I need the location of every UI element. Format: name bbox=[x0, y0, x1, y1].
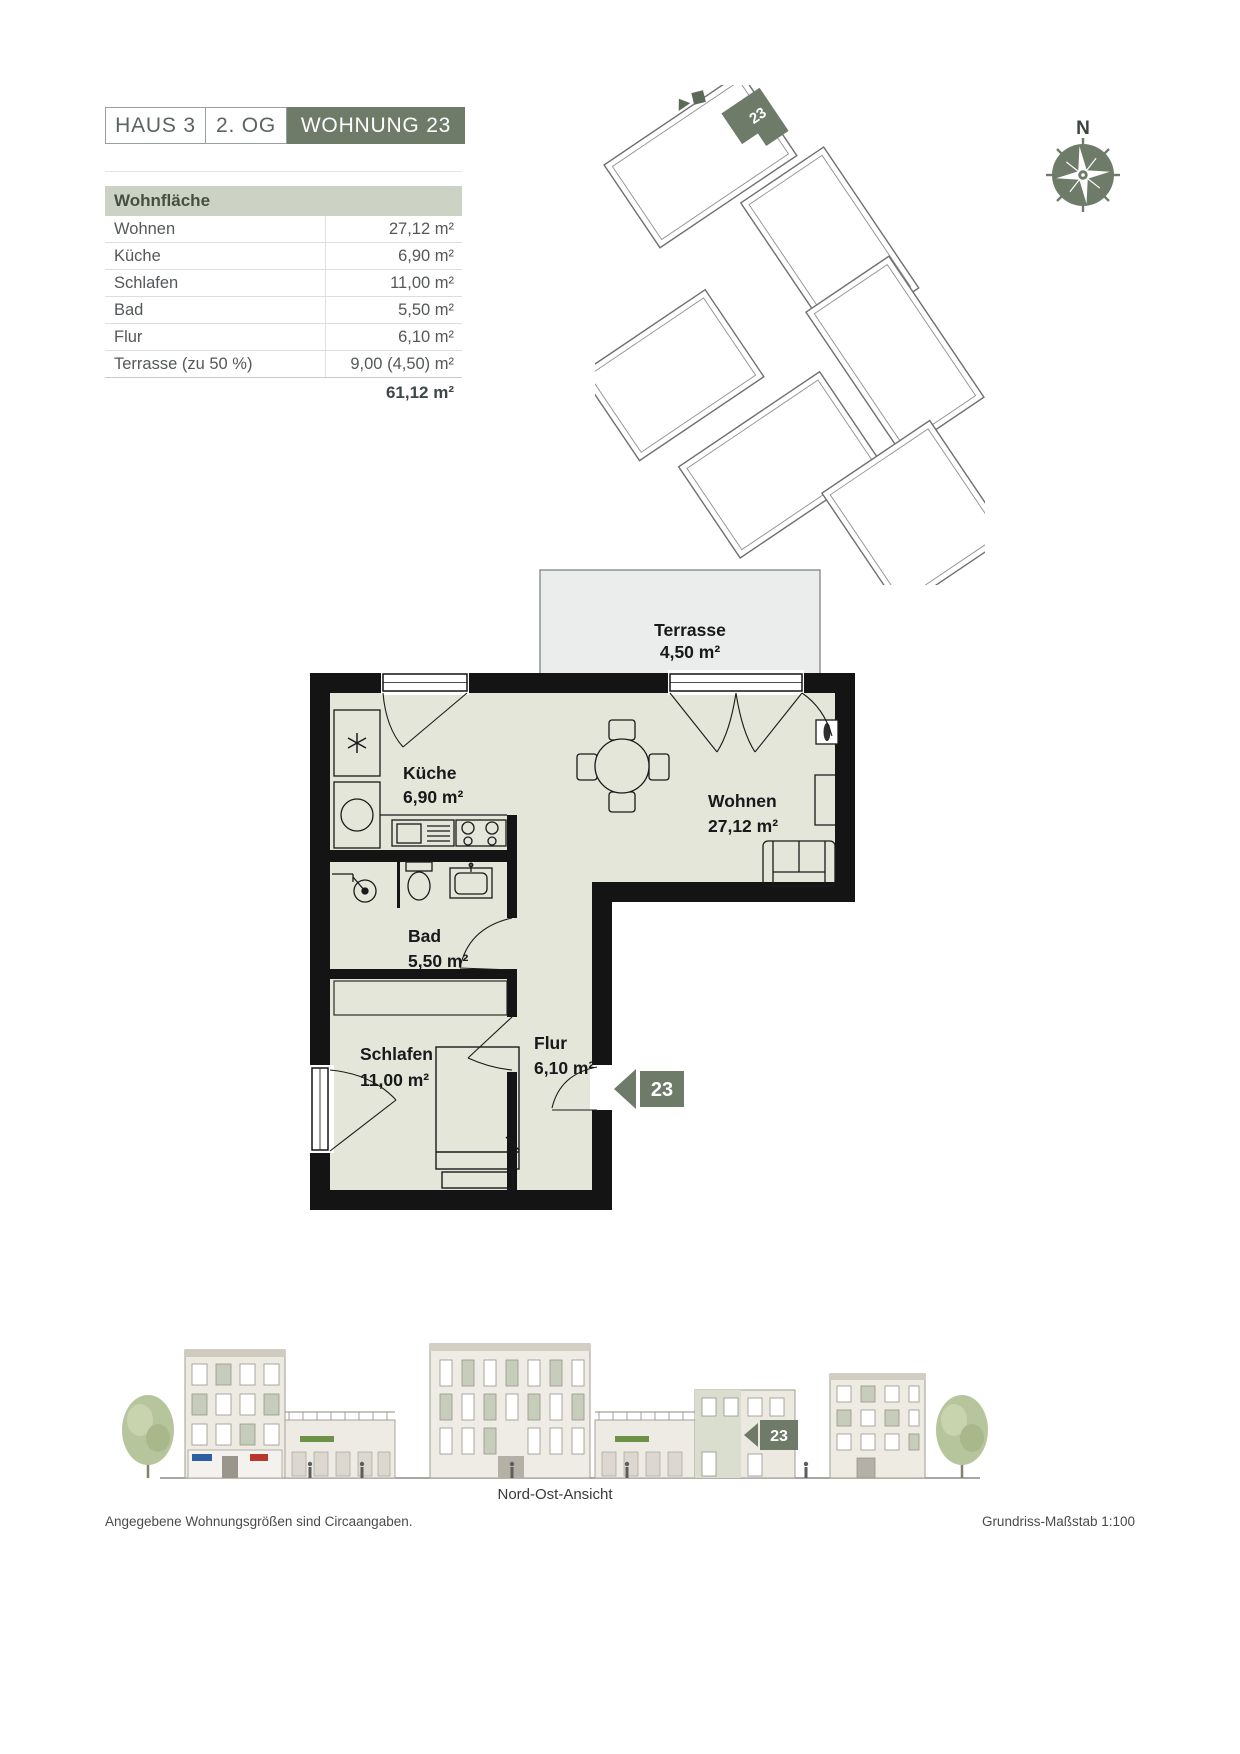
table-row: Wohnen 27,12 m² bbox=[105, 216, 462, 243]
elevation-building: 23 bbox=[695, 1390, 798, 1478]
elevation-drawing: 23 bbox=[100, 1332, 1140, 1507]
elevation-parking-deck bbox=[285, 1412, 395, 1478]
row-value: 9,00 (4,50) m² bbox=[326, 351, 462, 377]
room-label: Schlafen bbox=[360, 1044, 433, 1064]
room-area: 6,90 m² bbox=[403, 787, 463, 807]
elevation-building bbox=[430, 1344, 590, 1478]
footnote-left: Angegebene Wohnungsgrößen sind Circaanga… bbox=[105, 1514, 412, 1529]
green-sign bbox=[615, 1436, 649, 1442]
tree-icon bbox=[122, 1395, 174, 1478]
arrow-left-icon bbox=[614, 1069, 636, 1109]
table-row: Küche 6,90 m² bbox=[105, 243, 462, 270]
table-top-rule bbox=[105, 171, 462, 172]
floor-label: 2. OG bbox=[216, 114, 276, 138]
footnote-scale: Grundriss-Maßstab 1:100 bbox=[635, 1514, 1135, 1529]
row-label: Flur bbox=[105, 324, 326, 350]
table-row: Flur 6,10 m² bbox=[105, 324, 462, 351]
badge-number: 23 bbox=[770, 1428, 788, 1445]
site-plan: 23 bbox=[595, 85, 985, 585]
tree-icon bbox=[936, 1395, 988, 1478]
room-label: Flur bbox=[534, 1033, 567, 1053]
green-sign bbox=[300, 1436, 334, 1442]
unit-header: HAUS 3 2. OG WOHNUNG 23 bbox=[105, 107, 465, 144]
floor-label-box: 2. OG bbox=[205, 107, 287, 144]
entrance-marker-number: 23 bbox=[651, 1079, 673, 1101]
room-area: 4,50 m² bbox=[660, 642, 720, 662]
floorplan-sheet: HAUS 3 2. OG WOHNUNG 23 Wohnfläche Wohne… bbox=[0, 0, 1240, 1754]
row-label: Bad bbox=[105, 297, 326, 323]
room-label: Terrasse bbox=[654, 620, 726, 640]
unit-label: WOHNUNG 23 bbox=[301, 114, 451, 138]
shop-sign-red bbox=[250, 1454, 268, 1461]
entrance-marker: 23 bbox=[614, 1069, 684, 1109]
row-value: 6,90 m² bbox=[326, 243, 462, 269]
area-table: Wohnfläche Wohnen 27,12 m² Küche 6,90 m²… bbox=[105, 186, 462, 407]
elevation-building bbox=[185, 1350, 285, 1478]
shop-sign-blue bbox=[192, 1454, 212, 1461]
table-total-value: 61,12 m² bbox=[105, 378, 462, 407]
compass-north-label: N bbox=[1076, 118, 1090, 139]
room-area: 27,12 m² bbox=[708, 816, 778, 836]
room-label: Bad bbox=[408, 926, 441, 946]
table-row: Schlafen 11,00 m² bbox=[105, 270, 462, 297]
room-area: 5,50 m² bbox=[408, 951, 468, 971]
row-value: 11,00 m² bbox=[326, 270, 462, 296]
row-label: Küche bbox=[105, 243, 326, 269]
room-label: Wohnen bbox=[708, 791, 777, 811]
table-row: Bad 5,50 m² bbox=[105, 297, 462, 324]
row-value: 27,12 m² bbox=[326, 216, 462, 242]
haus-label-box: HAUS 3 bbox=[105, 107, 205, 144]
row-value: 6,10 m² bbox=[326, 324, 462, 350]
room-label: Küche bbox=[403, 763, 457, 783]
row-label: Schlafen bbox=[105, 270, 326, 296]
row-value: 5,50 m² bbox=[326, 297, 462, 323]
floor-plan: Terrasse 4,50 m² bbox=[270, 560, 870, 1240]
room-area: 6,10 m² bbox=[534, 1058, 594, 1078]
elevation-caption: Nord-Ost-Ansicht bbox=[100, 1486, 1010, 1503]
row-label: Terrasse (zu 50 %) bbox=[105, 351, 326, 377]
elevation-parking-deck bbox=[595, 1412, 695, 1478]
elevation-building bbox=[830, 1374, 925, 1478]
haus-label: HAUS 3 bbox=[115, 114, 196, 138]
row-label: Wohnen bbox=[105, 216, 326, 242]
area-table-title: Wohnfläche bbox=[105, 186, 462, 216]
room-area: 11,00 m² bbox=[360, 1070, 429, 1090]
compass-icon: N bbox=[1035, 100, 1135, 220]
table-row: Terrasse (zu 50 %) 9,00 (4,50) m² bbox=[105, 351, 462, 378]
unit-label-box: WOHNUNG 23 bbox=[287, 107, 465, 144]
